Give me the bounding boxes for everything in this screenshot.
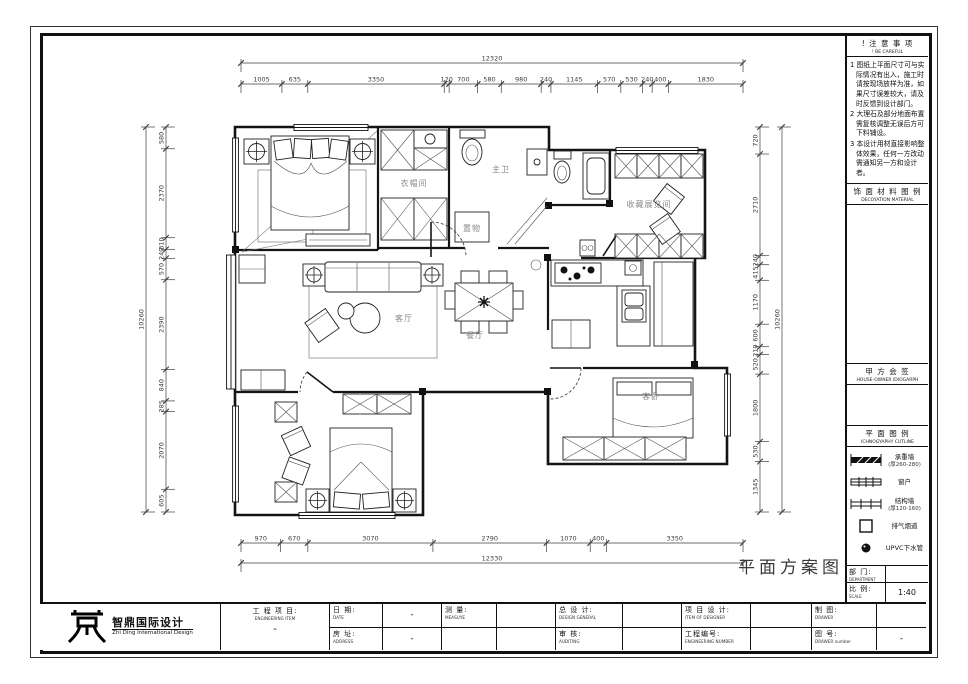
svg-text:2390: 2390 — [158, 316, 166, 333]
svg-text:12320: 12320 — [482, 55, 503, 63]
drawer-value — [876, 604, 926, 627]
field-address: 房 址:ADDRESS — [329, 628, 382, 651]
company-logo: 智鼎国际设计 Zhi Ding International Design — [40, 604, 220, 650]
notice-notes: 1 图纸上平面尺寸可与实际情况有出入，施工时请按现场放样为准，如果尺寸误差较大，… — [847, 57, 928, 184]
guest-bedroom: 客卧 — [550, 368, 693, 460]
svg-text:600: 600 — [752, 329, 760, 341]
measure-value — [496, 604, 555, 627]
dimension-left-segments: 580237031024057023908402852070605 — [158, 124, 176, 515]
svg-text:2790: 2790 — [481, 535, 498, 543]
svg-text:3350: 3350 — [666, 535, 683, 543]
room-label-living: 客厅 — [395, 313, 413, 323]
guest-door-swing — [550, 368, 581, 399]
svg-text:120: 120 — [440, 76, 452, 84]
legend-item-exhaust-flue: 排气烟道 — [849, 516, 926, 538]
field-item-designer: 项 目 设 计:ITEM OF DESIGNER — [681, 604, 750, 627]
field-drawer: 制 图:DRAWER — [811, 604, 876, 627]
dimension-bottom-segments: 9706703070279010704003350 — [238, 535, 746, 553]
room-label-cloakroom: 衣帽间 — [401, 178, 428, 188]
field-auditing: 审 核:AUDITING — [555, 628, 622, 651]
dining-room: 餐厅 — [445, 271, 523, 340]
dimension-right-segments: 7202710240415117060021052018005301345 — [752, 124, 770, 515]
dimension-bottom-overall: 12330 — [238, 555, 746, 573]
room-label-collection: 收藏展览间 — [627, 199, 672, 209]
material-legend-area — [847, 205, 928, 364]
svg-text:570: 570 — [603, 76, 615, 84]
notice-header: ! 注 意 事 项 ! BE CAREFUL — [847, 36, 928, 57]
svg-text:980: 980 — [515, 76, 527, 84]
svg-text:240: 240 — [641, 76, 653, 84]
room-label-storage: 置物 — [463, 223, 481, 233]
drawing-title: 平面方案图 — [728, 553, 853, 578]
window-icon — [849, 474, 883, 493]
svg-text:1005: 1005 — [253, 76, 270, 84]
master-bedroom — [242, 131, 377, 252]
note-2: 2 大理石及部分地面布置需复核调整无误后方可下料铺设。 — [850, 110, 925, 139]
svg-text:1800: 1800 — [752, 400, 760, 417]
svg-text:530: 530 — [752, 445, 760, 457]
info-sidebar: ! 注 意 事 项 ! BE CAREFUL 1 图纸上平面尺寸可与实际情况有出… — [845, 36, 928, 602]
svg-text:3350: 3350 — [368, 76, 385, 84]
field-engineering-number: 工程编号:ENGINEERING NUMBER — [681, 628, 750, 651]
svg-text:400: 400 — [592, 535, 604, 543]
logo-text-en: Zhi Ding International Design — [112, 629, 193, 637]
svg-text:2710: 2710 — [752, 197, 760, 214]
svg-text:2370: 2370 — [158, 185, 166, 202]
owner-sign-header: 甲 方 会 签 HOUSE-OWNER IDIOGARPH — [847, 364, 928, 385]
svg-text:3070: 3070 — [362, 535, 379, 543]
address-value: - — [382, 628, 441, 651]
armchair — [305, 309, 339, 343]
svg-text:240: 240 — [540, 76, 552, 84]
field-measure: 测 量:MEASUYE — [441, 604, 496, 627]
logo-text-cn: 智鼎国际设计 — [112, 617, 193, 628]
svg-text:580: 580 — [158, 132, 166, 144]
room-label-guest: 客卧 — [642, 391, 660, 401]
scale-value: 1:40 — [886, 583, 928, 602]
room-label-dining: 餐厅 — [466, 331, 484, 340]
svg-text:530: 530 — [625, 76, 637, 84]
svg-text:720: 720 — [752, 134, 760, 146]
svg-text:1170: 1170 — [752, 294, 760, 311]
dimension-top-segments: 1005635335012070058098024011455705302404… — [238, 76, 746, 94]
field-date: 日 期:DATE — [329, 604, 382, 627]
svg-text:520: 520 — [752, 358, 760, 370]
dimension-left-overall: 10260 — [138, 124, 156, 515]
field-blank — [441, 628, 496, 651]
note-1: 1 图纸上平面尺寸可与实际情况有出入，施工时请按现场放样为准，如果尺寸误差较大，… — [850, 61, 925, 109]
floor-plan-canvas: 12320 1005635335012070058098024011455705… — [43, 36, 845, 602]
drawing-number-value: - — [876, 628, 926, 651]
svg-text:415: 415 — [752, 266, 760, 278]
svg-text:10260: 10260 — [774, 309, 782, 330]
legend-item-window: 窗户 — [849, 472, 926, 494]
date-value: - — [382, 604, 441, 627]
bearing-wall-icon — [849, 452, 883, 471]
coffee-table — [350, 303, 380, 333]
svg-text:240: 240 — [158, 248, 166, 260]
field-engineering-item: 工 程 项 目: ENGINEERING ITEM - — [220, 604, 329, 650]
field-drawing-number: 图 号:DRAWER number — [811, 628, 876, 651]
svg-text:570: 570 — [158, 263, 166, 275]
plan-legend: 承重墙(厚260-280) 窗户 结构墙(厚120-160) 排气烟道 UPVC… — [847, 447, 928, 566]
ding-logo-icon — [67, 608, 107, 646]
svg-text:700: 700 — [457, 76, 469, 84]
svg-text:2070: 2070 — [158, 442, 166, 459]
svg-text:970: 970 — [255, 535, 267, 543]
svg-text:240: 240 — [752, 254, 760, 266]
sofa — [325, 262, 421, 292]
blank-value — [496, 628, 555, 651]
svg-text:1345: 1345 — [752, 478, 760, 495]
field-design-general: 总 设 计:DESIGN GENERAL — [555, 604, 622, 627]
bedroom-door-swing — [300, 372, 307, 392]
svg-text:840: 840 — [158, 379, 166, 391]
note-3: 3 本设计用材直接影响整体效果，任何一方改动需通知另一方和设计者。 — [850, 140, 925, 179]
svg-text:10260: 10260 — [138, 309, 146, 330]
legend-item-bearing-wall: 承重墙(厚260-280) — [849, 450, 926, 472]
engineering-number-value — [750, 628, 811, 651]
design-general-value — [622, 604, 681, 627]
svg-text:1830: 1830 — [697, 76, 714, 84]
svg-text:285: 285 — [158, 400, 166, 412]
svg-text:670: 670 — [288, 535, 300, 543]
title-block: 智鼎国际设计 Zhi Ding International Design 工 程… — [40, 602, 926, 650]
scale-field: 比 例:SCALE 1:40 — [847, 583, 928, 602]
engineering-item-value: - — [221, 624, 329, 635]
dimension-top-overall: 12320 — [238, 55, 746, 73]
legend-item-upvc-pipe: UPVC下水管 — [849, 538, 926, 560]
legend-item-structure-wall: 结构墙(厚120-160) — [849, 494, 926, 516]
kitchen — [551, 260, 693, 348]
owner-sign-area — [847, 385, 928, 426]
exhaust-flue-icon — [849, 518, 883, 537]
notice-title-cn: ! 注 意 事 项 — [847, 38, 928, 49]
drawing-sheet: { "sheet": { "drawing_title": "平面方案图" },… — [0, 0, 968, 684]
svg-text:1070: 1070 — [560, 535, 577, 543]
svg-text:635: 635 — [289, 76, 301, 84]
plan-legend-header: 平 面 图 例 ICHNOGYAPHY CUTLINE — [847, 426, 928, 447]
shower-corner — [507, 198, 547, 244]
second-bathroom — [554, 151, 609, 199]
cloakroom: 衣帽间 — [381, 130, 447, 240]
department-value — [886, 566, 928, 582]
svg-text:605: 605 — [158, 494, 166, 506]
tall-cabinet — [654, 262, 693, 346]
notice-title-en: ! BE CAREFUL — [851, 49, 924, 54]
material-legend-header: 饰 面 材 料 图 例 DECOYATION MATERIAL — [847, 184, 928, 205]
item-designer-value — [750, 604, 811, 627]
department-field: 部 门:DEPARTMENT — [847, 566, 928, 583]
svg-text:400: 400 — [654, 76, 666, 84]
dimension-right-overall: 10260 — [774, 124, 792, 515]
auditing-value — [622, 628, 681, 651]
svg-text:1145: 1145 — [566, 76, 583, 84]
svg-text:580: 580 — [483, 76, 495, 84]
svg-text:210: 210 — [752, 344, 760, 356]
upvc-pipe-icon — [849, 540, 883, 559]
svg-text:12330: 12330 — [482, 555, 503, 563]
room-label-master-bath: 主卫 — [492, 164, 510, 174]
structure-wall-icon — [849, 496, 883, 515]
